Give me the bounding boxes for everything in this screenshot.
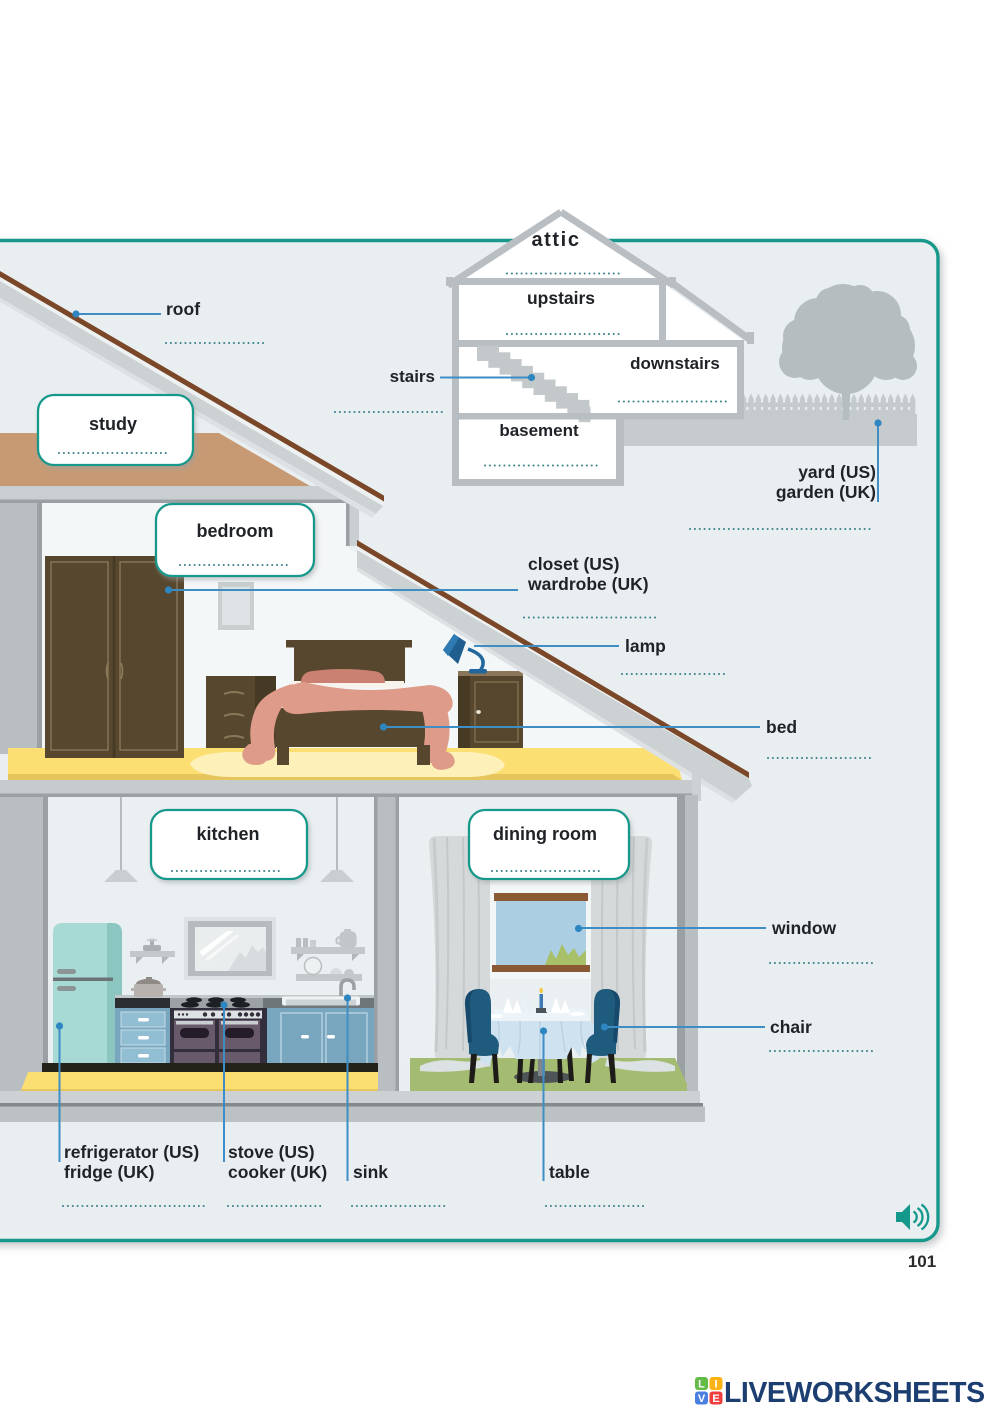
svg-text:E: E [712, 1393, 719, 1405]
svg-text:stove (US): stove (US) [228, 1142, 315, 1162]
svg-text:roof: roof [166, 299, 200, 319]
svg-text:V: V [698, 1393, 706, 1405]
svg-text:bedroom: bedroom [196, 521, 273, 541]
svg-text:lamp: lamp [625, 636, 666, 656]
svg-text:I: I [714, 1379, 717, 1391]
svg-text:study: study [89, 414, 137, 434]
svg-text:basement: basement [499, 421, 579, 440]
svg-text:upstairs: upstairs [527, 288, 595, 308]
svg-text:wardrobe (UK): wardrobe (UK) [527, 574, 649, 594]
svg-text:table: table [549, 1162, 590, 1182]
svg-text:chair: chair [770, 1017, 812, 1037]
svg-text:kitchen: kitchen [196, 824, 259, 844]
svg-text:fridge (UK): fridge (UK) [64, 1162, 154, 1182]
svg-text:LIVEWORKSHEETS: LIVEWORKSHEETS [724, 1377, 985, 1409]
svg-text:yard (US): yard (US) [798, 462, 876, 482]
svg-text:dining room: dining room [493, 824, 597, 844]
svg-text:cooker (UK): cooker (UK) [228, 1162, 327, 1182]
svg-text:sink: sink [353, 1162, 388, 1182]
svg-text:stairs: stairs [390, 367, 435, 386]
svg-text:L: L [698, 1379, 705, 1391]
svg-text:closet (US): closet (US) [528, 554, 619, 574]
svg-text:101: 101 [908, 1252, 936, 1271]
svg-text:refrigerator (US): refrigerator (US) [64, 1142, 199, 1162]
svg-text:bed: bed [766, 717, 797, 737]
svg-text:downstairs: downstairs [630, 354, 720, 373]
svg-text:window: window [771, 918, 837, 938]
svg-text:attic: attic [531, 229, 580, 251]
svg-text:garden (UK): garden (UK) [776, 482, 876, 502]
